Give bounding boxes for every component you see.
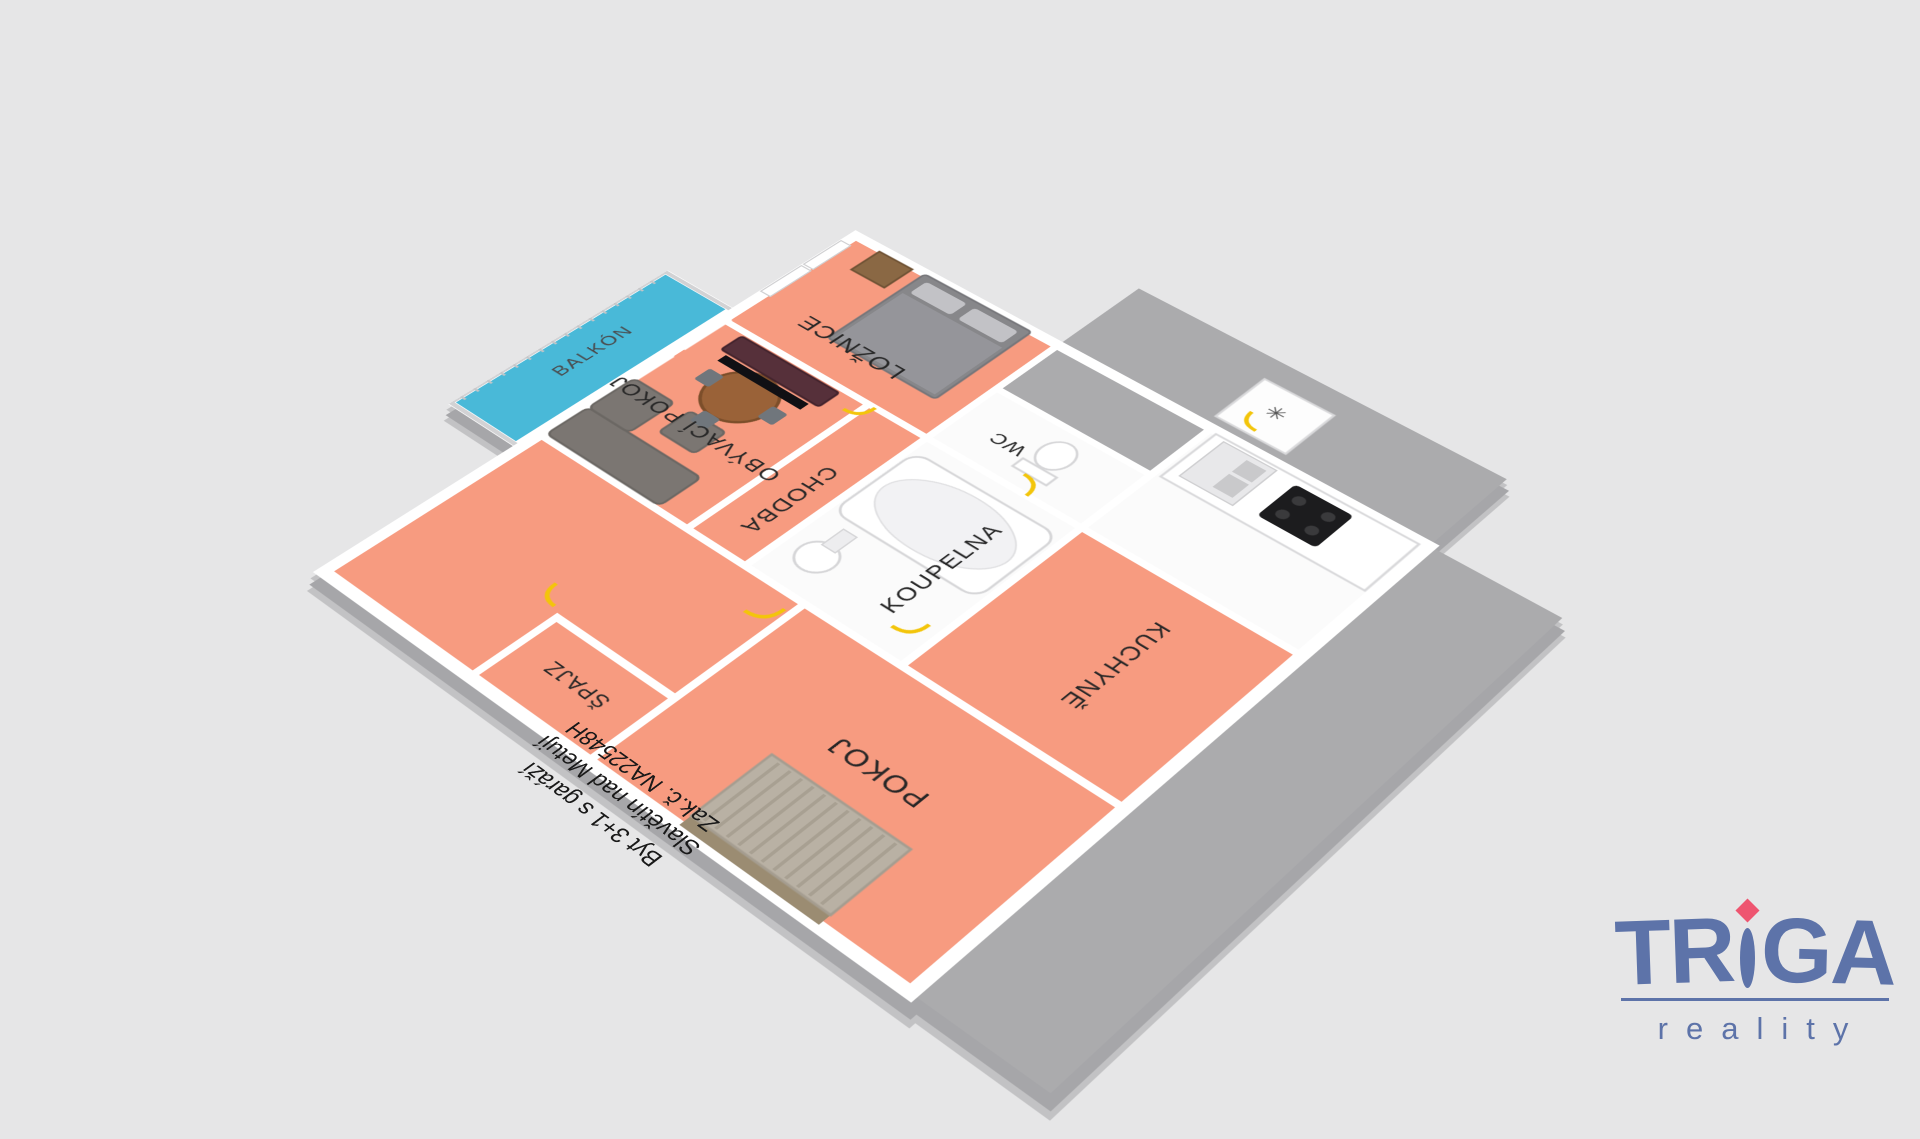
logo-letters-ga: GA	[1760, 913, 1896, 992]
logo-letters-tr: TR	[1614, 913, 1735, 993]
diamond-icon	[1735, 898, 1759, 922]
triga-reality-logo: TR GA reality	[1615, 902, 1895, 1047]
scene: ✳	[0, 0, 1920, 1095]
floorplan-3d: ✳	[232, 139, 1693, 1139]
logo-wordmark: TR GA	[1615, 902, 1895, 990]
logo-i-stem	[1740, 928, 1755, 988]
floorplan-svg: ✳	[232, 139, 1693, 1139]
logo-letter-i	[1739, 902, 1756, 988]
logo-subtitle: reality	[1615, 1011, 1895, 1047]
